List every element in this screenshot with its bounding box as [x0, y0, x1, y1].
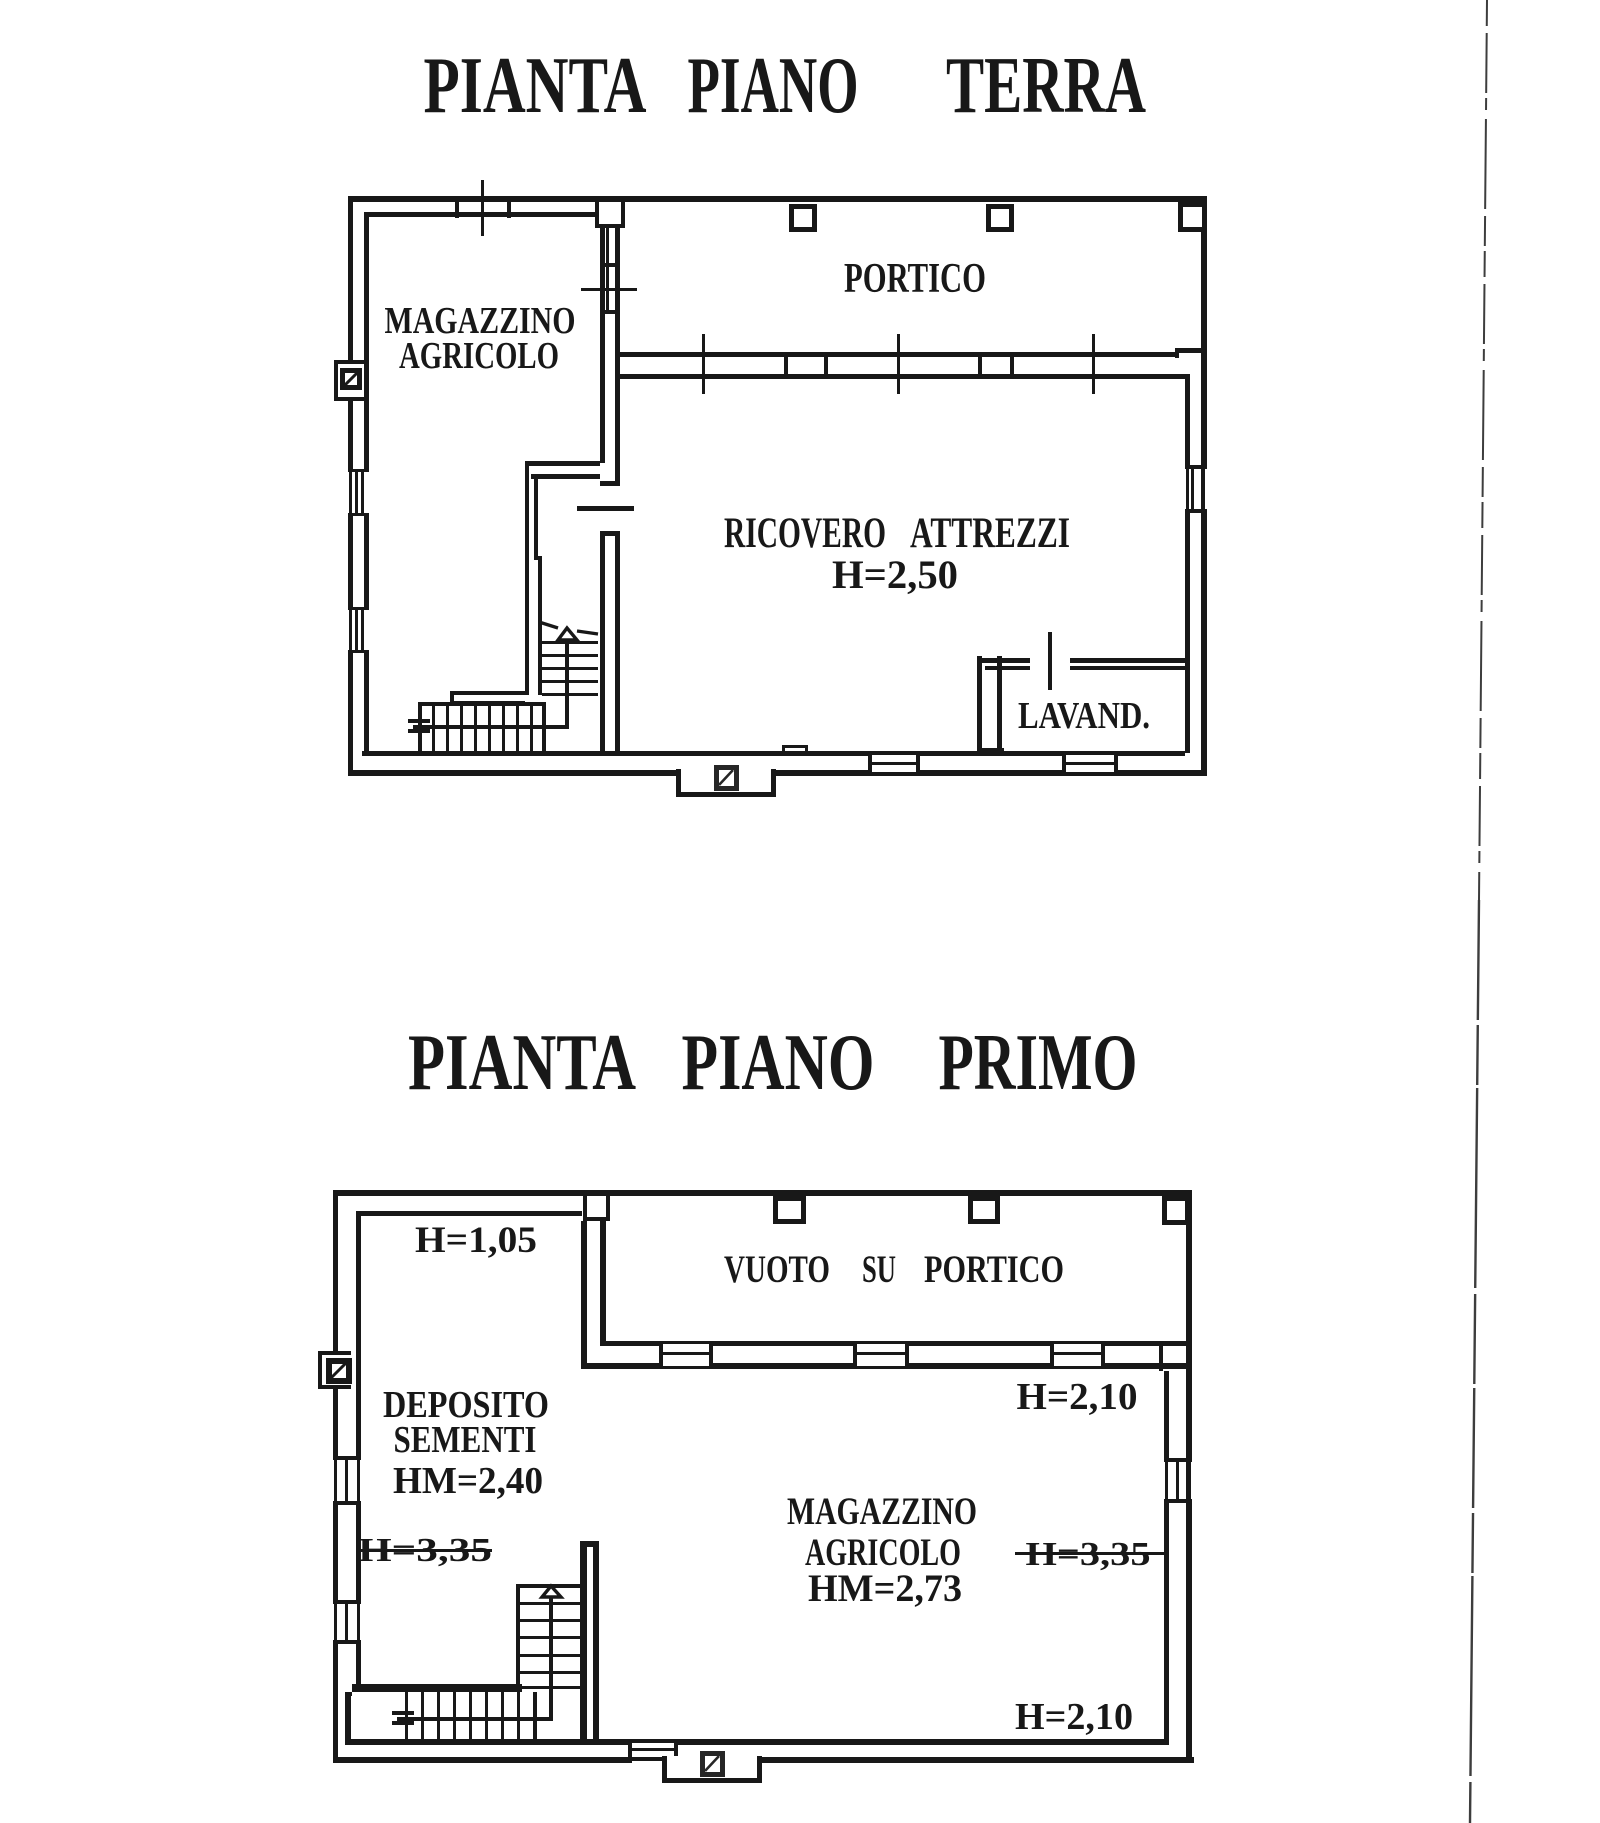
svg-text:PIANO: PIANO [682, 1017, 875, 1107]
svg-text:SEMENTI: SEMENTI [394, 1419, 537, 1461]
svg-text:MAGAZZINO: MAGAZZINO [787, 1490, 977, 1533]
svg-text:RICOVERO: RICOVERO [724, 510, 886, 557]
svg-text:H=2,50: H=2,50 [832, 552, 958, 597]
svg-text:ATTREZZI: ATTREZZI [910, 510, 1070, 557]
svg-text:H=1,05: H=1,05 [415, 1220, 537, 1261]
svg-text:TERRA: TERRA [946, 40, 1146, 130]
svg-text:PRIMO: PRIMO [939, 1017, 1138, 1107]
svg-text:PORTICO: PORTICO [844, 256, 986, 302]
svg-text:HM=2,40: HM=2,40 [393, 1460, 543, 1502]
svg-text:H=2,10: H=2,10 [1015, 1696, 1133, 1738]
svg-text:HM=2,73: HM=2,73 [808, 1567, 962, 1610]
svg-text:VUOTO: VUOTO [724, 1248, 830, 1291]
svg-text:PORTICO: PORTICO [924, 1248, 1064, 1291]
svg-text:AGRICOLO: AGRICOLO [399, 335, 559, 377]
svg-text:SU: SU [862, 1248, 896, 1291]
svg-text:LAVAND.: LAVAND. [1018, 695, 1150, 737]
svg-text:PIANTA: PIANTA [424, 40, 647, 130]
svg-text:PIANTA: PIANTA [408, 1017, 636, 1107]
svg-text:H=2,10: H=2,10 [1017, 1376, 1138, 1418]
svg-text:PIANO: PIANO [688, 40, 859, 130]
